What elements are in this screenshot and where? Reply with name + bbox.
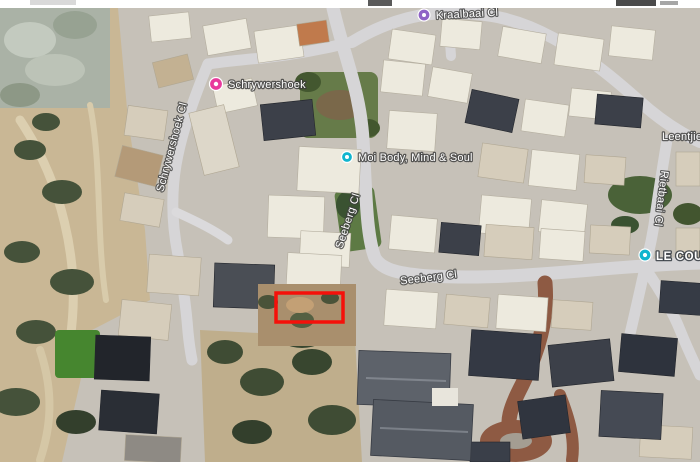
satellite-map-screenshot: Kraalbaai Cl Schrywershoek Cl Seeberg Cl… (0, 0, 700, 467)
poi-label-schrywershoek: Schrywershoek (228, 79, 306, 91)
poi-label-le-courier: LE COURI (656, 251, 700, 263)
poi-label-moi-body: Moi Body, Mind & Soul (358, 152, 473, 164)
satellite-map-canvas[interactable]: Kraalbaai Cl Schrywershoek Cl Seeberg Cl… (0, 0, 700, 467)
top-edge-artifacts (30, 0, 678, 6)
poi-kraalbaai[interactable] (418, 9, 430, 21)
street-label-leentjiesklip: Leentjie (662, 131, 700, 143)
lawn-green (55, 330, 100, 378)
poi-moi-body[interactable]: Moi Body, Mind & Soul (342, 152, 473, 165)
